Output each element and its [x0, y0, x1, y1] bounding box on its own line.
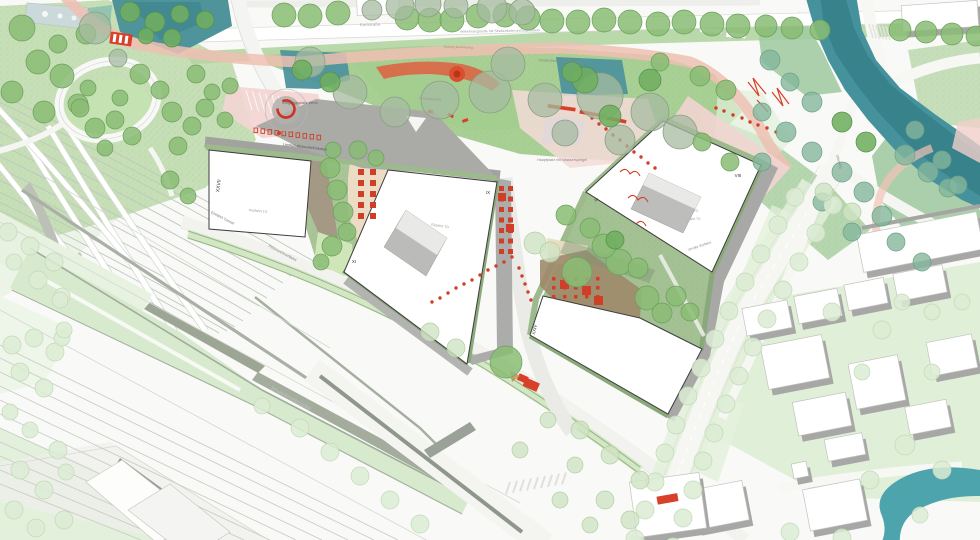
svg-text:Hauptplatz mit Wasserspiegel: Hauptplatz mit Wasserspiegel — [537, 158, 587, 162]
svg-text:Karlstraße: Karlstraße — [360, 22, 381, 27]
svg-text:IX: IX — [486, 190, 490, 195]
svg-text:VIII: VIII — [735, 173, 742, 178]
svg-text:XI: XI — [352, 259, 356, 264]
svg-text:Eingangsplatz West: Eingangsplatz West — [282, 100, 318, 105]
